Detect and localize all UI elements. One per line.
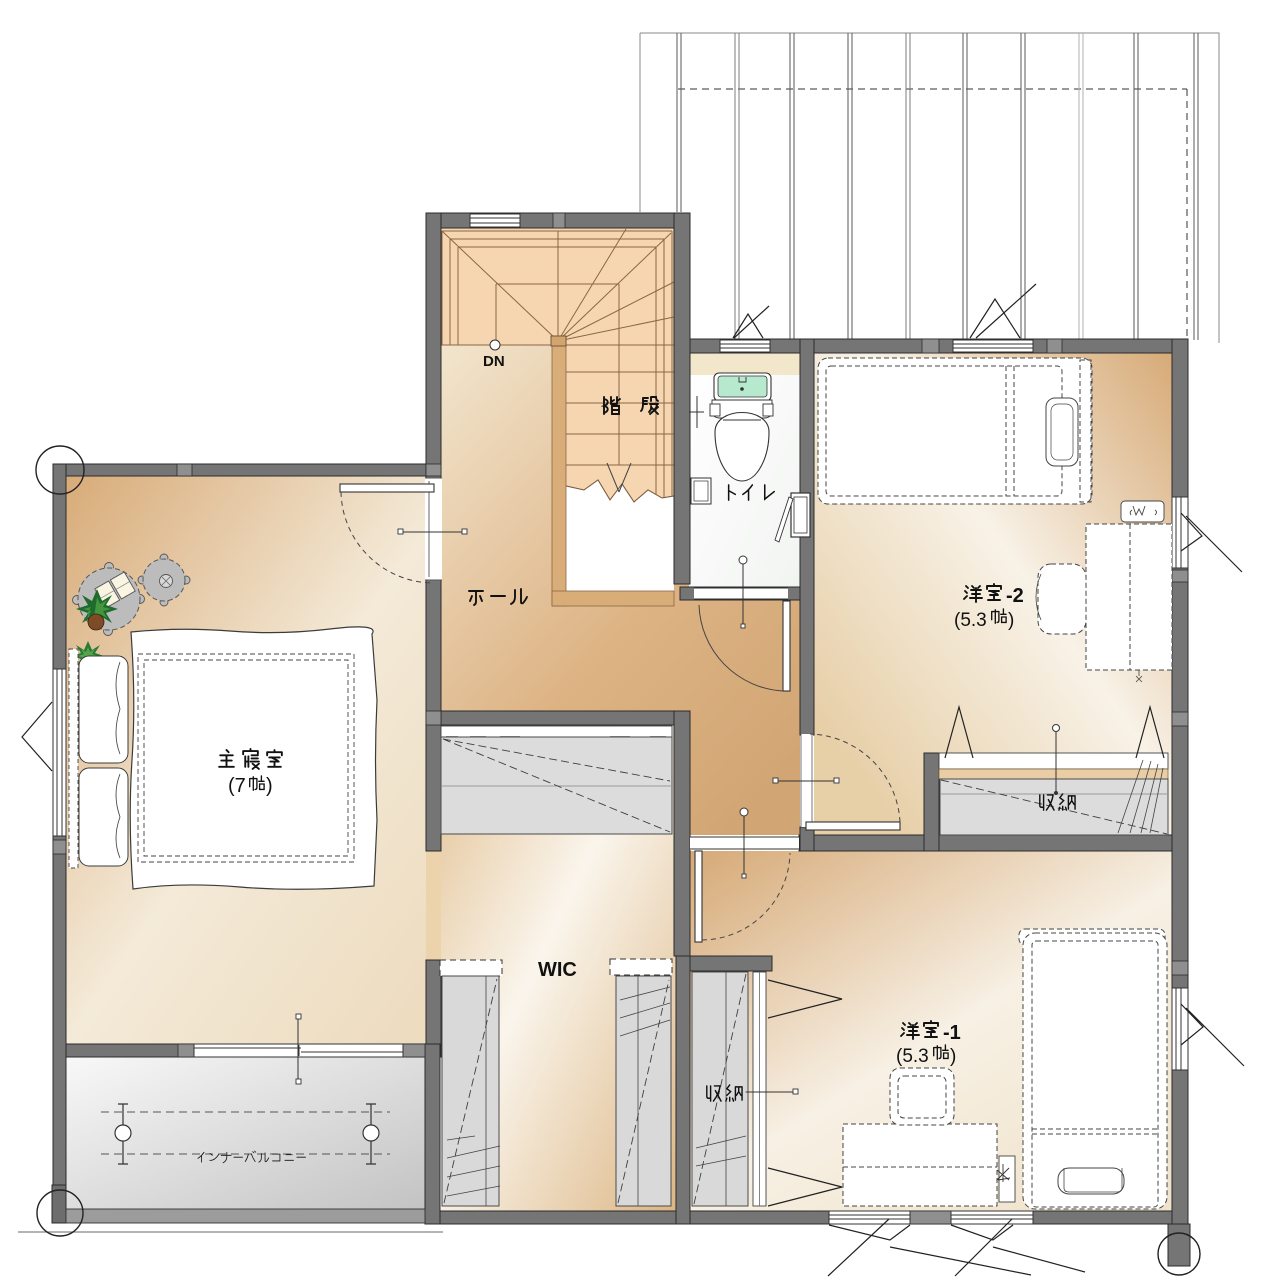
svg-text:): ) (1008, 610, 1014, 631)
svg-text:): ) (266, 775, 273, 797)
svg-text:(7: (7 (228, 775, 246, 797)
svg-text:(5.3: (5.3 (896, 1046, 929, 1067)
svg-text:): ) (950, 1046, 956, 1067)
svg-text:(5.3: (5.3 (954, 610, 987, 631)
svg-text:-2: -2 (1006, 585, 1024, 607)
svg-text:DN: DN (483, 353, 505, 370)
svg-text:-1: -1 (943, 1022, 961, 1044)
svg-text:WIC: WIC (538, 959, 577, 981)
